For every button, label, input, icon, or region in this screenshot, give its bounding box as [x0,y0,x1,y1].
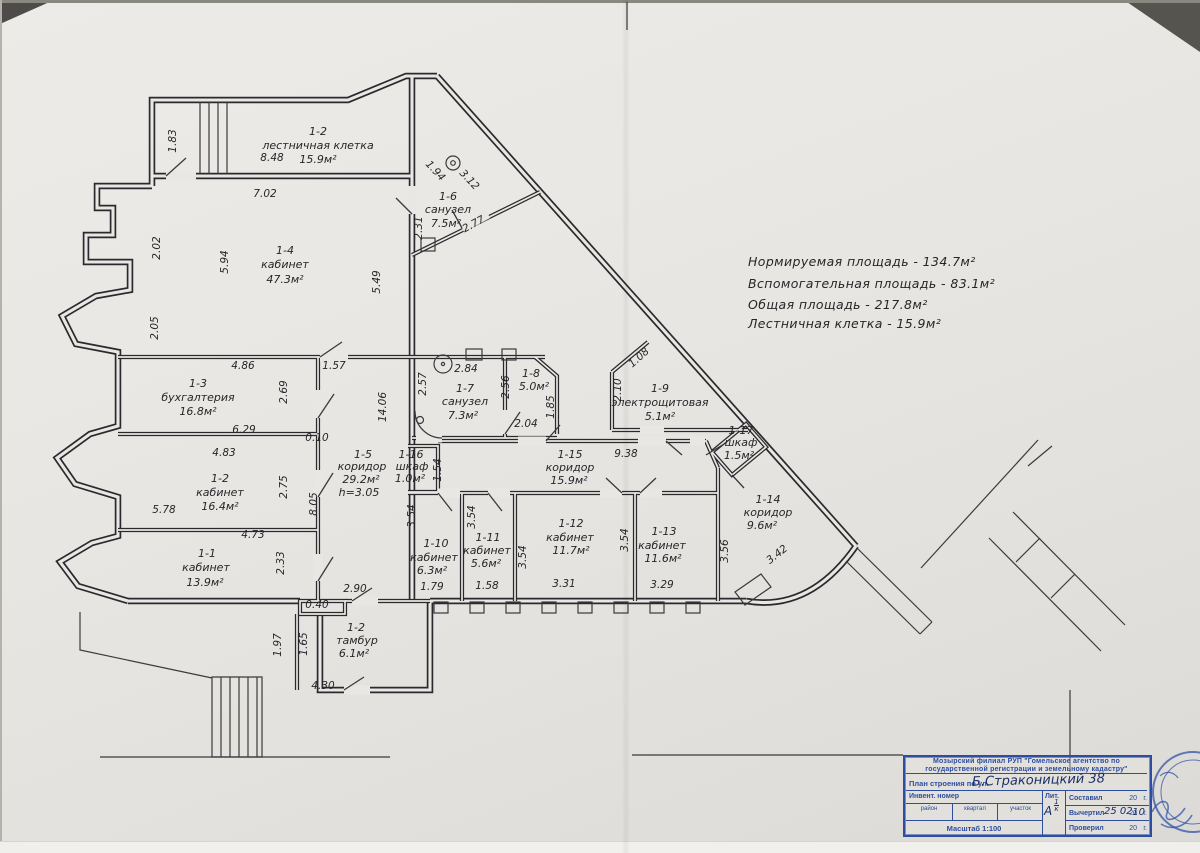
dim-label: 1.79 [420,581,444,593]
floor-plan-svg: 1-2 лестничная клетка 15.9м² 1-4 кабинет… [0,0,1200,853]
dim-label: 2.90 [343,583,367,595]
lit-value-handwritten: А1к [1044,803,1057,818]
year-suffix: г. [1143,825,1147,832]
agency-name: Мозырский филиал РУП "Гомельское агентст… [906,758,1147,774]
dim-label: 4.86 [231,360,255,372]
room-name: кабинет [546,531,594,544]
year-suffix: г. [1143,795,1147,802]
dim-label: 5.49 [371,270,383,294]
agency-name-line1: Мозырский филиал РУП "Гомельское агентст… [906,758,1147,766]
room-id: 1-12 [559,517,584,530]
room-area: 7.3м² [448,409,479,422]
dim-label: 14.06 [377,392,389,422]
dim-label: 3.29 [650,579,674,591]
dim-label: 0.10 [305,432,329,444]
room-name: кабинет [463,544,511,557]
column-kvartal: квартал [952,804,998,820]
room-area: 16.4м² [201,500,239,513]
room-area: 1.0м² [395,472,426,485]
summary-line: Лестничная клетка - 15.9м² [747,316,941,331]
room-area: 9.6м² [747,519,778,532]
dim-label: 2.10 [612,378,624,402]
stamp-and-signature [1152,752,1200,832]
room-name: кабинет [410,551,458,564]
dim-label: 3.54 [406,504,418,527]
dim-label: 2.57 [417,372,429,396]
room-id: 1-10 [424,537,449,550]
dim-label: 1.54 [432,458,444,481]
room-area: 15.9м² [299,153,337,166]
dim-label: 5.94 [219,250,231,273]
room-area: 6.3м² [417,564,448,577]
room-name: кабинет [638,539,686,552]
dim-label: 3.54 [517,545,529,568]
room-name: коридор [744,506,793,519]
room-name: санузел [425,203,471,216]
dim-label: 1.97 [272,633,284,657]
dim-label: 1.83 [167,129,179,152]
dim-label: 1.94 [423,158,448,183]
room-area: 13.9м² [186,576,224,589]
room-name: кабинет [196,486,244,499]
column-uchastok: участок [998,806,1043,812]
dim-label: 2.75 [278,475,290,499]
dim-label: 2.69 [278,380,290,404]
room-name: электрощитовая [611,396,708,409]
dim-label: 7.02 [253,188,277,200]
dim-label: 0.40 [305,599,329,611]
room-height: h=3.05 [339,486,380,499]
area-summary: Нормируемая площадь - 134.7м² Вспомогате… [747,254,995,331]
dim-label: 2.31 [413,216,425,239]
room-id: 1-4 [276,244,294,257]
dim-label: 3.42 [764,543,790,567]
room-name: кабинет [182,561,230,574]
lit-letter: А [1044,804,1052,818]
room-area: 1.5м² [724,449,755,462]
dim-label: 4.73 [241,529,264,541]
room-name: тамбур [336,634,378,647]
room-area: 16.8м² [179,405,217,418]
dim-label: 2.05 [149,316,161,340]
lit-fraction-bottom: к [1054,805,1058,812]
room-id: 1-2 [309,125,327,138]
vychertil-row: Вычертил 25 02 20 10 г. [1066,806,1149,821]
dim-label: 2.84 [454,363,477,375]
scale-label: Масштаб 1:100 [906,821,1042,834]
sostavil-row: Составил 20 г. [1066,791,1149,806]
title-block: Мозырский филиал РУП "Гомельское агентст… [903,755,1152,837]
room-area: 5.0м² [519,380,550,393]
stairs-and-site-lines [80,2,1125,772]
room-area: 5.6м² [471,557,502,570]
dim-label: 2.56 [500,375,512,399]
room-name: коридор [546,461,595,474]
dim-label: 2.33 [275,551,287,574]
title-block-divider [1042,791,1043,835]
plan-address-value-handwritten: Б.Страконицкий 38 [972,771,1105,789]
dim-label: 3.12 [457,167,482,193]
lit-fraction: 1к [1054,799,1058,812]
room-area: 15.9м² [550,474,588,487]
dim-label: 1.65 [298,632,310,656]
plan-address-row: План строения по ул. Б.Страконицкий 38 [906,774,1147,791]
room-id: 1-7 [456,382,474,395]
room-id: 1-3 [189,377,207,390]
proveril-row: Проверил 20 г. [1066,821,1149,835]
dim-label: 1.08 [626,345,652,370]
dim-label: 4.83 [212,447,235,459]
room-name: лестничная клетка [261,139,374,152]
dim-label: 3.31 [552,578,575,590]
room-id: 1-14 [756,493,781,506]
room-area: 7.5м² [431,217,462,230]
dim-label: 8.05 [308,492,320,516]
dim-label: 1.57 [322,360,346,372]
summary-line: Вспомогательная площадь - 83.1м² [748,276,995,291]
room-area: 6.1м² [339,647,370,660]
room-id: 1-13 [652,525,677,538]
room-id: 1-9 [651,382,669,395]
room-id: 1-2 [211,472,229,485]
inventory-sub-columns: район квартал участок [906,803,1042,821]
dim-label: 1.85 [545,395,557,419]
year-prefix: 20 [1129,825,1137,832]
sostavil-label: Составил [1069,795,1103,802]
dim-label: 3.54 [619,528,631,551]
room-area: 29.2м² [342,473,380,486]
dim-label: 5.78 [152,504,176,516]
room-area: 11.6м² [644,552,682,565]
dim-label: 1.58 [475,580,499,592]
room-id: 1-6 [439,190,457,203]
dim-label: 9.38 [614,448,638,460]
year-prefix: 20 [1129,795,1137,802]
dim-label: 2.04 [514,418,537,430]
room-id: 1-11 [476,531,501,544]
column-rayon: район [906,806,952,812]
dim-label: 8.48 [260,152,284,164]
room-name: бухгалтерия [161,391,235,404]
year-suffix: г. [1143,810,1147,817]
summary-line: Общая площадь - 217.8м² [748,297,928,312]
dim-label: 3.54 [466,505,478,528]
dim-label: 4.30 [311,680,335,692]
room-id: 1-2 [347,621,365,634]
room-name: коридор [338,460,387,473]
room-area: 11.7м² [552,544,590,557]
vychertil-label: Вычертил [1069,810,1104,817]
room-id: 1-15 [558,448,583,461]
dim-label: 3.56 [719,539,731,563]
room-name: санузел [442,395,488,408]
room-area: 47.3м² [266,273,304,286]
scanned-floor-plan-page: 1-2 лестничная клетка 15.9м² 1-4 кабинет… [0,0,1200,853]
room-id: 1-1 [198,547,216,560]
room-id: 1-8 [522,367,540,380]
summary-line: Нормируемая площадь - 134.7м² [748,254,976,269]
inventory-number-label: Инвент. номер [909,793,959,800]
dim-label: 6.29 [232,424,256,436]
room-area: 5.1м² [645,410,676,423]
dim-label: 2.02 [151,236,163,260]
room-name: шкаф [725,436,758,449]
room-name: кабинет [261,258,309,271]
proveril-label: Проверил [1069,825,1104,832]
